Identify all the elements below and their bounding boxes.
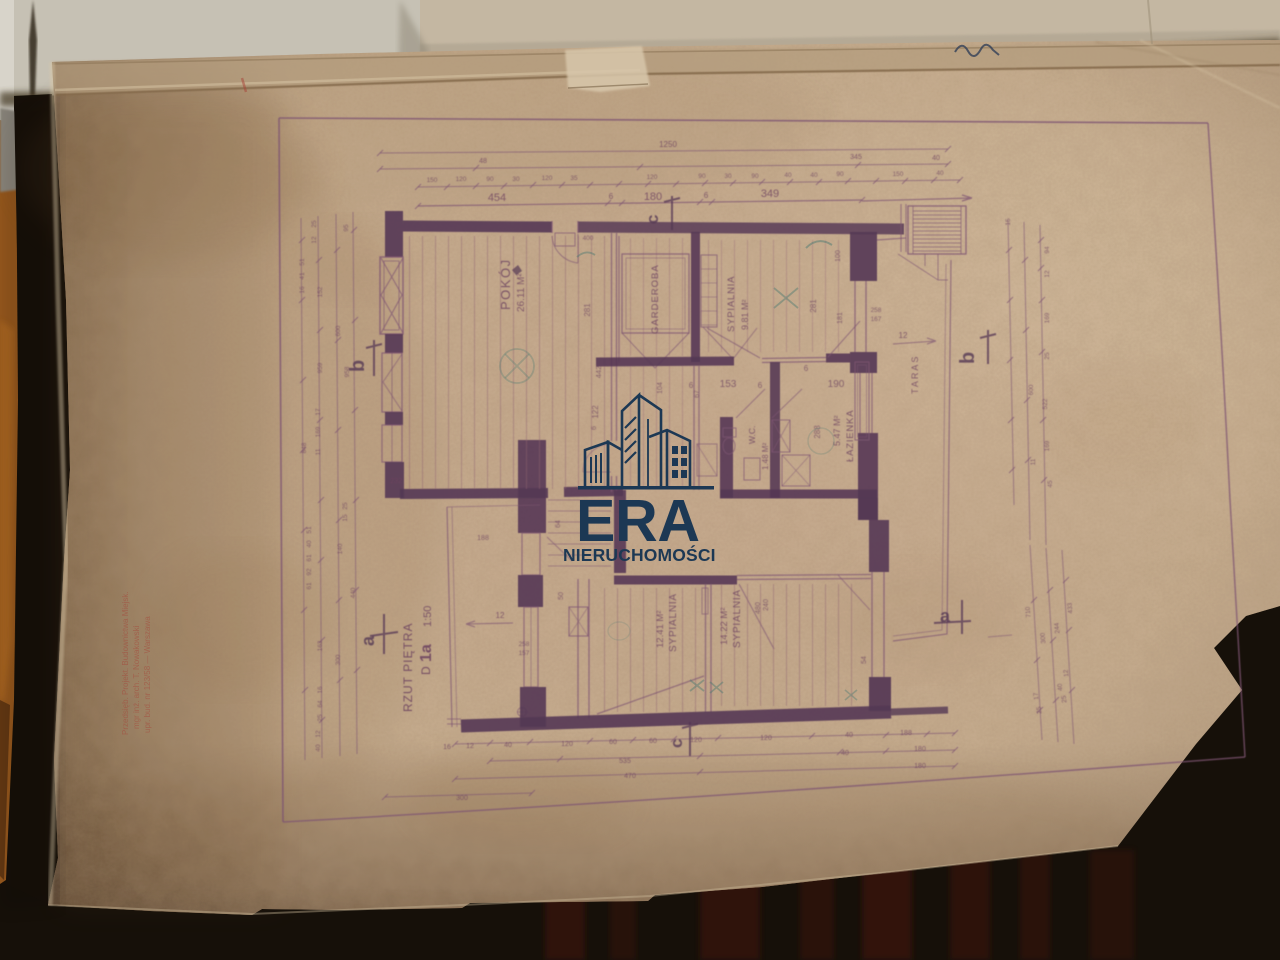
svg-text:SYPIALNIA: SYPIALNIA <box>732 589 743 648</box>
svg-text:SYPIALNIA: SYPIALNIA <box>668 593 679 652</box>
svg-text:600: 600 <box>1028 384 1035 395</box>
svg-text:163: 163 <box>317 640 324 651</box>
svg-text:upr. bud. nr 123/58 — Warszawa: upr. bud. nr 123/58 — Warszawa <box>143 616 152 733</box>
svg-text:522: 522 <box>1042 398 1049 409</box>
svg-text:ŁAZIENKA: ŁAZIENKA <box>845 410 856 462</box>
svg-text:258: 258 <box>519 641 530 648</box>
svg-text:281: 281 <box>583 303 592 317</box>
svg-text:c: c <box>667 739 686 748</box>
svg-text:40: 40 <box>784 172 792 179</box>
svg-text:11: 11 <box>1030 458 1037 465</box>
svg-text:288: 288 <box>813 425 822 439</box>
svg-text:64: 64 <box>555 520 562 528</box>
svg-text:6: 6 <box>804 364 809 373</box>
svg-text:30: 30 <box>724 173 732 180</box>
svg-text:26.11 M²: 26.11 M² <box>516 273 527 312</box>
svg-text:480: 480 <box>755 602 762 614</box>
svg-text:6: 6 <box>609 192 614 201</box>
svg-text:14.22 M²: 14.22 M² <box>719 608 730 646</box>
svg-text:180: 180 <box>644 191 662 203</box>
svg-text:150: 150 <box>427 177 438 184</box>
svg-text:6: 6 <box>591 426 598 430</box>
svg-text:Przedsięb. Projekt. Budownictw: Przedsięb. Projekt. Budownictwa Miejsk. <box>121 591 130 735</box>
svg-text:181: 181 <box>837 312 844 324</box>
svg-text:64: 64 <box>317 700 324 708</box>
svg-text:b: b <box>347 360 369 372</box>
svg-text:258: 258 <box>871 307 882 314</box>
svg-text:45: 45 <box>1047 480 1054 488</box>
svg-text:169: 169 <box>315 426 322 437</box>
svg-text:40: 40 <box>932 155 940 162</box>
svg-text:152: 152 <box>317 286 324 297</box>
svg-text:25: 25 <box>342 502 349 510</box>
svg-text:345: 345 <box>850 154 862 161</box>
svg-text:180: 180 <box>914 763 926 770</box>
svg-text:120: 120 <box>760 735 772 742</box>
svg-text:300: 300 <box>456 795 468 802</box>
svg-text:9.81 M²: 9.81 M² <box>740 299 750 330</box>
svg-text:51: 51 <box>299 258 306 266</box>
svg-text:349: 349 <box>761 188 779 200</box>
svg-text:6: 6 <box>704 191 709 200</box>
svg-text:94: 94 <box>1044 246 1051 254</box>
svg-text:100: 100 <box>835 250 842 262</box>
svg-text:1250: 1250 <box>659 140 677 149</box>
svg-text:6: 6 <box>758 381 763 390</box>
svg-text:40: 40 <box>504 742 512 749</box>
svg-text:244: 244 <box>1054 622 1062 634</box>
svg-text:710: 710 <box>1025 606 1033 618</box>
svg-text:848: 848 <box>301 442 308 453</box>
svg-text:mgr inż. arch. T. Nowakowski: mgr inż. arch. T. Nowakowski <box>132 625 141 729</box>
svg-text:16: 16 <box>299 286 306 294</box>
svg-text:25: 25 <box>1061 695 1069 703</box>
svg-text:25: 25 <box>1036 706 1044 714</box>
svg-text:a: a <box>940 606 951 626</box>
svg-text:40: 40 <box>841 750 849 757</box>
svg-text:40: 40 <box>845 732 853 739</box>
svg-text:61: 61 <box>306 554 313 562</box>
svg-text:188: 188 <box>900 730 912 737</box>
svg-text:95: 95 <box>343 224 350 232</box>
svg-text:c: c <box>643 215 662 224</box>
svg-text:a: a <box>358 635 378 646</box>
svg-text:12: 12 <box>466 743 474 750</box>
svg-text:140: 140 <box>337 543 344 554</box>
svg-text:300: 300 <box>335 654 342 665</box>
svg-text:b: b <box>957 352 979 364</box>
svg-text:12: 12 <box>311 236 318 244</box>
svg-text:6: 6 <box>689 381 694 390</box>
svg-text:400: 400 <box>583 235 594 242</box>
svg-text:433: 433 <box>1067 602 1075 614</box>
svg-text:232: 232 <box>390 478 402 485</box>
svg-text:600: 600 <box>335 325 342 336</box>
svg-text:40: 40 <box>1057 683 1065 691</box>
svg-text:40: 40 <box>810 172 818 179</box>
svg-text:48: 48 <box>479 158 487 165</box>
svg-text:35: 35 <box>570 175 578 182</box>
svg-text:40: 40 <box>936 170 944 177</box>
svg-text:90: 90 <box>836 171 844 178</box>
svg-text:60: 60 <box>649 738 657 745</box>
svg-text:188: 188 <box>477 535 489 542</box>
svg-text:40: 40 <box>306 540 313 548</box>
svg-text:12.41 M²: 12.41 M² <box>655 611 666 649</box>
svg-text:300: 300 <box>1040 632 1048 644</box>
svg-text:92: 92 <box>306 568 313 576</box>
svg-text:RZUT PIĘTRA: RZUT PIĘTRA <box>401 623 415 712</box>
svg-text:25: 25 <box>317 714 324 722</box>
svg-text:16: 16 <box>317 686 324 694</box>
svg-text:POKÓJ: POKÓJ <box>498 258 513 310</box>
svg-text:120: 120 <box>561 741 573 748</box>
svg-text:12: 12 <box>1063 669 1071 677</box>
svg-text:120: 120 <box>647 174 658 181</box>
svg-text:470: 470 <box>624 773 636 780</box>
svg-text:180: 180 <box>914 746 926 753</box>
svg-text:90: 90 <box>698 173 706 180</box>
svg-text:61: 61 <box>306 582 313 590</box>
svg-text:15: 15 <box>1005 218 1012 226</box>
svg-text:167: 167 <box>871 316 882 323</box>
svg-text:157: 157 <box>519 650 530 657</box>
svg-text:50: 50 <box>558 592 565 600</box>
svg-text:TARAS: TARAS <box>910 355 920 394</box>
svg-text:12: 12 <box>315 730 322 738</box>
svg-text:120: 120 <box>456 176 467 183</box>
svg-text:959: 959 <box>317 362 324 373</box>
svg-text:454: 454 <box>488 192 506 204</box>
svg-text:41: 41 <box>299 272 306 280</box>
svg-text:16: 16 <box>443 744 451 751</box>
svg-text:40: 40 <box>315 744 322 752</box>
svg-text:30: 30 <box>512 176 520 183</box>
svg-text:281: 281 <box>809 299 818 313</box>
svg-text:169: 169 <box>1044 440 1051 451</box>
svg-text:90: 90 <box>751 173 759 180</box>
svg-text:25: 25 <box>1044 352 1051 360</box>
svg-text:153: 153 <box>720 379 737 390</box>
svg-text:NIERUCHOMOŚCI: NIERUCHOMOŚCI <box>563 544 717 565</box>
svg-text:D: D <box>419 666 433 675</box>
svg-text:25: 25 <box>311 220 318 228</box>
svg-text:12: 12 <box>1044 270 1051 278</box>
svg-text:15: 15 <box>342 514 349 522</box>
svg-text:1.48 M²: 1.48 M² <box>761 443 770 470</box>
svg-text:12: 12 <box>899 331 908 340</box>
svg-text:150: 150 <box>893 171 904 178</box>
svg-text:122: 122 <box>591 405 600 419</box>
svg-text:51: 51 <box>306 526 313 534</box>
svg-text:190: 190 <box>828 379 845 390</box>
svg-text:W.C.: W.C. <box>747 426 757 444</box>
svg-text:1a: 1a <box>418 644 435 662</box>
svg-text:17: 17 <box>1033 692 1041 700</box>
svg-text:12: 12 <box>496 611 505 620</box>
svg-text:240: 240 <box>763 599 770 611</box>
svg-text:120: 120 <box>542 175 553 182</box>
svg-text:SYPIALNIA: SYPIALNIA <box>726 276 737 332</box>
svg-text:1:50: 1:50 <box>422 606 434 627</box>
svg-text:11: 11 <box>315 448 322 455</box>
svg-text:17: 17 <box>315 408 322 416</box>
svg-text:535: 535 <box>619 758 631 765</box>
svg-text:104: 104 <box>657 382 664 394</box>
svg-text:440: 440 <box>350 587 357 598</box>
svg-text:54: 54 <box>861 656 868 664</box>
svg-text:67: 67 <box>694 390 701 398</box>
svg-text:60: 60 <box>609 739 617 746</box>
svg-text:120: 120 <box>690 737 702 744</box>
svg-text:90: 90 <box>486 176 494 183</box>
svg-text:169: 169 <box>1044 312 1051 323</box>
svg-text:442: 442 <box>594 366 603 379</box>
svg-text:GARDEROBA: GARDEROBA <box>650 264 661 334</box>
